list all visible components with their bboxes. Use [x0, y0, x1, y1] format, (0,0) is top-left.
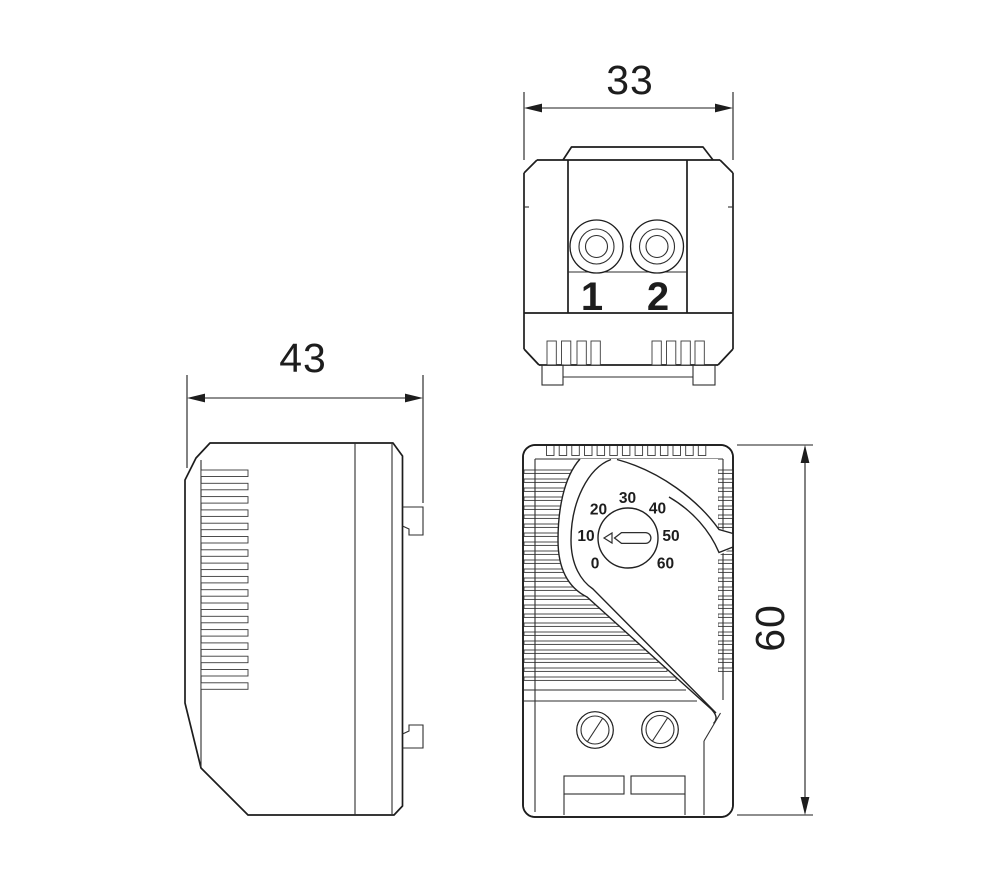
front-view: 0 10 20 30 40 50 60: [523, 445, 813, 817]
dial-label-40: 40: [649, 501, 666, 518]
foot-left: [542, 365, 563, 385]
dimension-top-width: 33: [524, 57, 733, 160]
arrowhead-right: [405, 394, 423, 403]
dial-label-50: 50: [662, 528, 679, 545]
top-ridge: [563, 147, 713, 160]
foot-right: [693, 365, 715, 385]
dial-knob-slot: [615, 533, 651, 544]
din-clip-top: [403, 507, 424, 535]
side-view: 43: [185, 335, 423, 815]
terminal-screw-right: [642, 711, 679, 748]
arrowhead-right: [715, 104, 733, 113]
dial-label-60: 60: [657, 556, 674, 573]
dimension-front-height: 60: [737, 445, 813, 815]
terminal-2: [631, 220, 684, 273]
dial-label-30: 30: [619, 490, 636, 507]
top-view-vent-slots: [547, 341, 704, 365]
top-view-body: 1 2: [524, 147, 733, 385]
drawing-canvas: 33: [0, 0, 1000, 886]
terminal-1: [570, 220, 623, 273]
side-view-vent-slats: [201, 470, 248, 689]
arrowhead-left: [187, 394, 205, 403]
thermostat-technical-drawing: 33: [0, 0, 1000, 886]
dial-label-20: 20: [590, 502, 607, 519]
dim-label-front-height: 60: [747, 604, 793, 652]
dim-label-side-depth: 43: [279, 335, 327, 381]
arrowhead-top: [801, 445, 810, 463]
dial-label-0: 0: [591, 556, 600, 573]
top-view: 33: [524, 57, 733, 385]
arrowhead-left: [524, 104, 542, 113]
arrowhead-bottom: [801, 797, 810, 815]
front-right-vent-slats: [718, 470, 733, 671]
dim-label-top-width: 33: [606, 57, 654, 103]
dial-label-10: 10: [577, 528, 594, 545]
dimension-side-depth: 43: [187, 335, 423, 503]
side-view-body: [185, 443, 423, 815]
terminal-screw-left: [577, 712, 614, 749]
din-clip-bottom: [403, 725, 424, 748]
terminal-2-label: 2: [647, 275, 669, 319]
terminal-1-label: 1: [581, 275, 603, 319]
